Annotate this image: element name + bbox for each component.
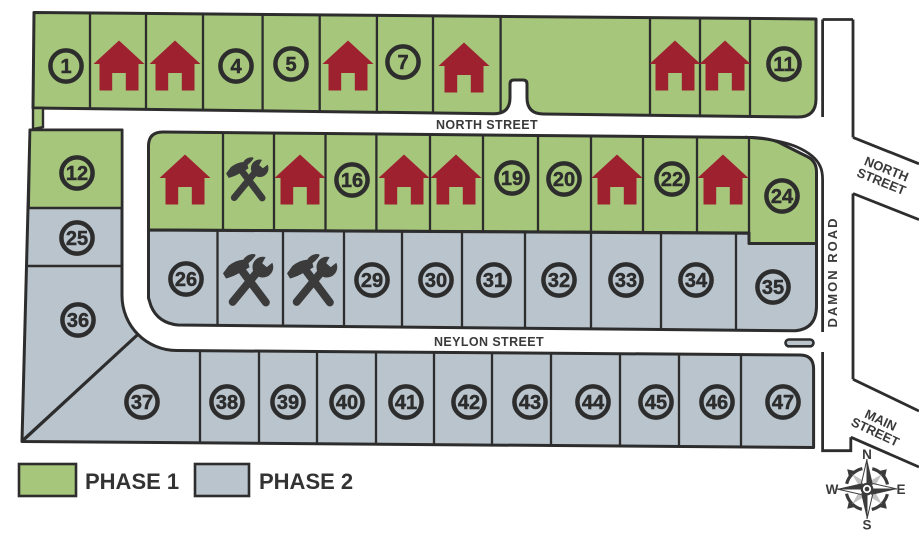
- svg-text:NEYLON STREET: NEYLON STREET: [434, 335, 544, 349]
- svg-text:7: 7: [397, 52, 408, 74]
- svg-text:31: 31: [483, 270, 505, 292]
- svg-text:E: E: [896, 482, 905, 497]
- svg-text:41: 41: [395, 392, 417, 414]
- svg-text:32: 32: [548, 270, 570, 292]
- svg-text:39: 39: [277, 392, 299, 414]
- svg-text:43: 43: [519, 392, 541, 414]
- svg-text:4: 4: [230, 56, 242, 78]
- svg-text:36: 36: [67, 310, 89, 332]
- svg-text:25: 25: [66, 228, 88, 250]
- svg-text:29: 29: [361, 270, 383, 292]
- svg-text:42: 42: [458, 392, 480, 414]
- svg-text:40: 40: [336, 392, 358, 414]
- svg-text:35: 35: [762, 277, 784, 299]
- svg-text:1: 1: [60, 56, 71, 78]
- svg-text:26: 26: [175, 269, 197, 291]
- svg-text:N: N: [862, 447, 872, 462]
- svg-text:16: 16: [341, 170, 363, 192]
- svg-text:33: 33: [615, 270, 637, 292]
- svg-text:24: 24: [771, 186, 794, 208]
- svg-text:S: S: [862, 518, 871, 533]
- svg-text:PHASE 1: PHASE 1: [85, 469, 179, 494]
- svg-text:30: 30: [425, 270, 447, 292]
- svg-text:W: W: [826, 482, 839, 497]
- svg-text:20: 20: [553, 169, 575, 191]
- svg-text:19: 19: [501, 168, 523, 190]
- svg-text:NORTH STREET: NORTH STREET: [436, 118, 538, 132]
- svg-text:44: 44: [582, 392, 605, 414]
- svg-text:37: 37: [131, 392, 153, 414]
- svg-text:PHASE 2: PHASE 2: [259, 469, 353, 494]
- svg-text:45: 45: [645, 392, 667, 414]
- svg-text:34: 34: [685, 270, 708, 292]
- svg-text:46: 46: [706, 392, 728, 414]
- svg-text:22: 22: [661, 169, 683, 191]
- svg-text:38: 38: [216, 392, 238, 414]
- svg-text:5: 5: [285, 54, 296, 76]
- svg-text:DAMON ROAD: DAMON ROAD: [825, 217, 840, 328]
- svg-text:47: 47: [772, 392, 794, 414]
- svg-text:12: 12: [66, 163, 88, 185]
- svg-text:11: 11: [773, 54, 794, 76]
